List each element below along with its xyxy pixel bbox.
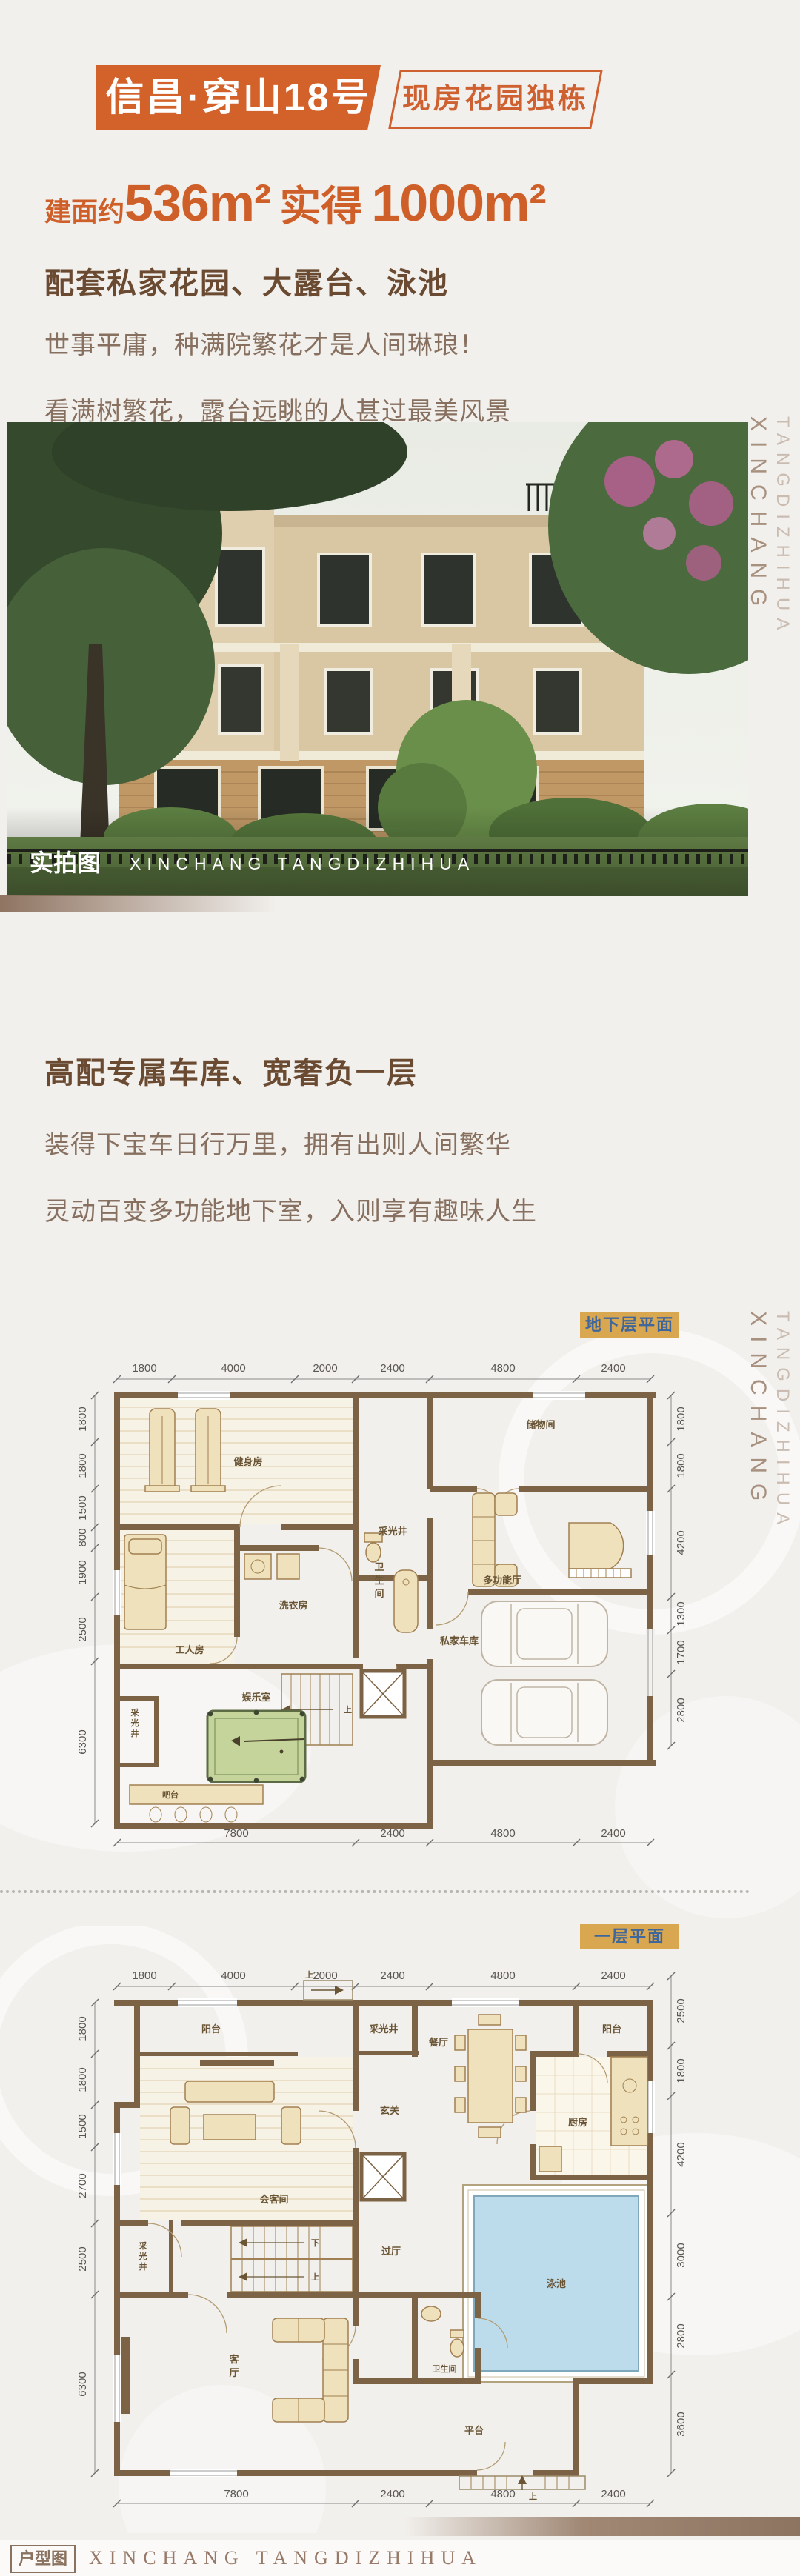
room-label-foyer: 玄关: [380, 2105, 399, 2116]
elevator-floor1: [361, 2154, 404, 2200]
svg-text:2700: 2700: [76, 2173, 89, 2198]
laundry-icons: [244, 1554, 299, 1579]
piano-icon: [569, 1523, 631, 1578]
room-label-terrace: 平台: [464, 2425, 484, 2436]
room-label-reception: 会客间: [259, 2194, 288, 2205]
stairs-floor1: 下 上: [231, 2226, 353, 2292]
svg-text:3000: 3000: [675, 2243, 687, 2267]
sale-badge: 现房花园独栋: [388, 70, 603, 129]
side-brand-top-1: TANGDIZHIHUA: [772, 416, 793, 637]
gradient-ribbon-photo: [0, 895, 278, 912]
svg-text:6300: 6300: [76, 2372, 89, 2396]
bar-counter-icon: [130, 1785, 263, 1822]
promo-page: { "header": { "title": "信昌·穿山18号", "badg…: [0, 0, 800, 2576]
room-label-hall: 过厅: [381, 2246, 401, 2257]
room-label-living: 客厅: [229, 2354, 239, 2378]
svg-text:7800: 7800: [224, 2488, 248, 2500]
svg-text:1800: 1800: [675, 1407, 687, 1431]
photo-tag: 实拍图: [30, 850, 101, 876]
brand-banner: 信昌·穿山18号: [96, 65, 381, 130]
photo-brand: XINCHANG TANGDIZHIHUA: [130, 854, 475, 873]
room-label-kitchen: 厨房: [568, 2117, 587, 2128]
side-brand-top-2: TANGDIZHIHUA: [772, 1311, 793, 1532]
area-mid: 实得: [279, 173, 362, 233]
footer-label: 户型图: [10, 2545, 76, 2573]
area-second: 1000m²: [371, 173, 545, 233]
svg-text:2500: 2500: [76, 2246, 89, 2271]
svg-text:2400: 2400: [601, 1969, 625, 1982]
svg-text:4800: 4800: [490, 1827, 515, 1840]
svg-text:1800: 1800: [76, 1407, 89, 1431]
room-label-pool: 泳池: [547, 2278, 566, 2289]
room-label-bar: 吧台: [162, 1789, 179, 1800]
svg-text:2500: 2500: [76, 1617, 89, 1641]
room-label-bath-b: 卫生间: [374, 1561, 384, 1599]
svg-text:2400: 2400: [601, 2488, 625, 2500]
worker-bed-icon: [124, 1535, 166, 1629]
room-label-garage: 私家车库: [440, 1635, 479, 1646]
svg-text:1700: 1700: [675, 1640, 687, 1664]
svg-text:4000: 4000: [221, 1969, 245, 1982]
sofa-icon-basement: [473, 1493, 517, 1586]
room-label-lightwell-top: 采光井: [377, 1526, 407, 1537]
garage-line-2: 灵动百变多功能地下室，入则享有趣味人生: [44, 1191, 537, 1227]
features-line: 配套私家花园、大露台、泳池: [44, 259, 449, 302]
bath-icons-floor1: [421, 2306, 464, 2357]
svg-text:4200: 4200: [675, 2142, 687, 2166]
basement-floorplan: 1800 4000 2000 2400 4800 2400 1800 1800 …: [59, 1348, 711, 1866]
svg-text:1300: 1300: [675, 1601, 687, 1626]
svg-text:上: 上: [305, 1969, 313, 1980]
room-label-play: 娱乐室: [241, 1692, 270, 1703]
billiard-table-icon: [207, 1710, 305, 1783]
room-label-balcony-left: 阳台: [201, 2023, 221, 2035]
svg-text:2000: 2000: [313, 1362, 337, 1375]
footer-brand: XINCHANG TANGDIZHIHUA: [89, 2545, 482, 2572]
svg-text:2400: 2400: [380, 1969, 404, 1982]
garage-title: 高配专属车库、宽奢负一层: [44, 1049, 418, 1092]
elevator-basement: [361, 1671, 404, 1717]
svg-text:1800: 1800: [132, 1362, 156, 1375]
room-label-lightwell-left-b: 采光井: [130, 1707, 140, 1738]
room-label-worker: 工人房: [175, 1644, 204, 1655]
svg-text:4800: 4800: [490, 1362, 515, 1375]
svg-text:4800: 4800: [490, 1969, 515, 1982]
car-icons: [481, 1601, 607, 1745]
entry-steps: 上: [459, 2475, 585, 2501]
svg-text:2400: 2400: [380, 2488, 404, 2500]
area-headline: 建面约 536m² 实得 1000m²: [44, 173, 546, 233]
svg-text:1800: 1800: [76, 2016, 89, 2041]
room-label-dining: 餐厅: [428, 2037, 448, 2048]
svg-text:4200: 4200: [675, 1530, 687, 1555]
dining-set-icon: [455, 2015, 526, 2138]
svg-text:1500: 1500: [76, 2114, 89, 2138]
side-brand-bottom-2: XINCHANG: [745, 1311, 770, 1511]
side-brand-bottom-1: XINCHANG: [745, 416, 770, 616]
svg-text:1800: 1800: [132, 1969, 156, 1982]
area-prefix: 建面约: [44, 190, 124, 229]
svg-text:2400: 2400: [380, 1362, 404, 1375]
room-label-multi: 多功能厅: [483, 1575, 521, 1586]
svg-text:上: 上: [529, 2491, 537, 2501]
svg-text:1800: 1800: [675, 1453, 687, 1478]
svg-text:2500: 2500: [675, 1998, 687, 2023]
room-label-storage: 储物间: [525, 1419, 555, 1430]
building-photo-art: 实拍图 XINCHANG TANGDIZHIHUA: [7, 422, 748, 896]
basement-badge: 地下层平面: [580, 1312, 679, 1338]
floor1-badge: 一层平面: [580, 1924, 679, 1949]
room-label-lightwell-top-f1: 采光井: [368, 2023, 398, 2035]
svg-text:2400: 2400: [601, 1362, 625, 1375]
room-label-laundry: 洗衣房: [279, 1600, 307, 1611]
floor1-floorplan: 1800 4000 2000 2400 4800 2400 1800 1800 …: [59, 1955, 711, 2512]
svg-text:3600: 3600: [675, 2412, 687, 2436]
gradient-ribbon-footer: [404, 2517, 800, 2536]
svg-text:1800: 1800: [675, 2058, 687, 2083]
svg-text:6300: 6300: [76, 1729, 89, 1754]
svg-text:1900: 1900: [76, 1560, 89, 1584]
room-label-balcony-right: 阳台: [602, 2023, 621, 2035]
garage-door-opening: [646, 1629, 655, 1696]
sale-badge-label: 现房花园独栋: [396, 72, 595, 127]
svg-text:2800: 2800: [675, 1698, 687, 1722]
room-label-gym: 健身房: [233, 1456, 262, 1467]
pool: 泳池: [463, 2185, 650, 2382]
bath-icons-basement: [364, 1533, 418, 1632]
svg-text:800: 800: [76, 1528, 89, 1546]
dotted-separator: [0, 1890, 750, 1893]
svg-text:上: 上: [344, 1704, 352, 1715]
svg-text:2400: 2400: [601, 1827, 625, 1840]
building-photo: 实拍图 XINCHANG TANGDIZHIHUA: [7, 422, 748, 896]
room-label-lightwell-left-f1: 采光井: [139, 2240, 148, 2272]
slogan-line-1: 世事平庸，种满院繁花才是人间琳琅！: [44, 324, 485, 361]
area-main: 536m²: [124, 173, 270, 233]
svg-text:上: 上: [311, 2272, 319, 2282]
room-label-bath-f1: 卫生间: [433, 2363, 457, 2374]
svg-text:2800: 2800: [675, 2323, 687, 2348]
svg-text:1800: 1800: [76, 1453, 89, 1478]
svg-text:4000: 4000: [221, 1362, 245, 1375]
svg-text:1800: 1800: [76, 2067, 89, 2092]
svg-text:下: 下: [311, 2238, 319, 2248]
svg-text:1500: 1500: [76, 1495, 89, 1520]
garage-line-1: 装得下宝车日行万里，拥有出则人间繁华: [44, 1124, 511, 1161]
